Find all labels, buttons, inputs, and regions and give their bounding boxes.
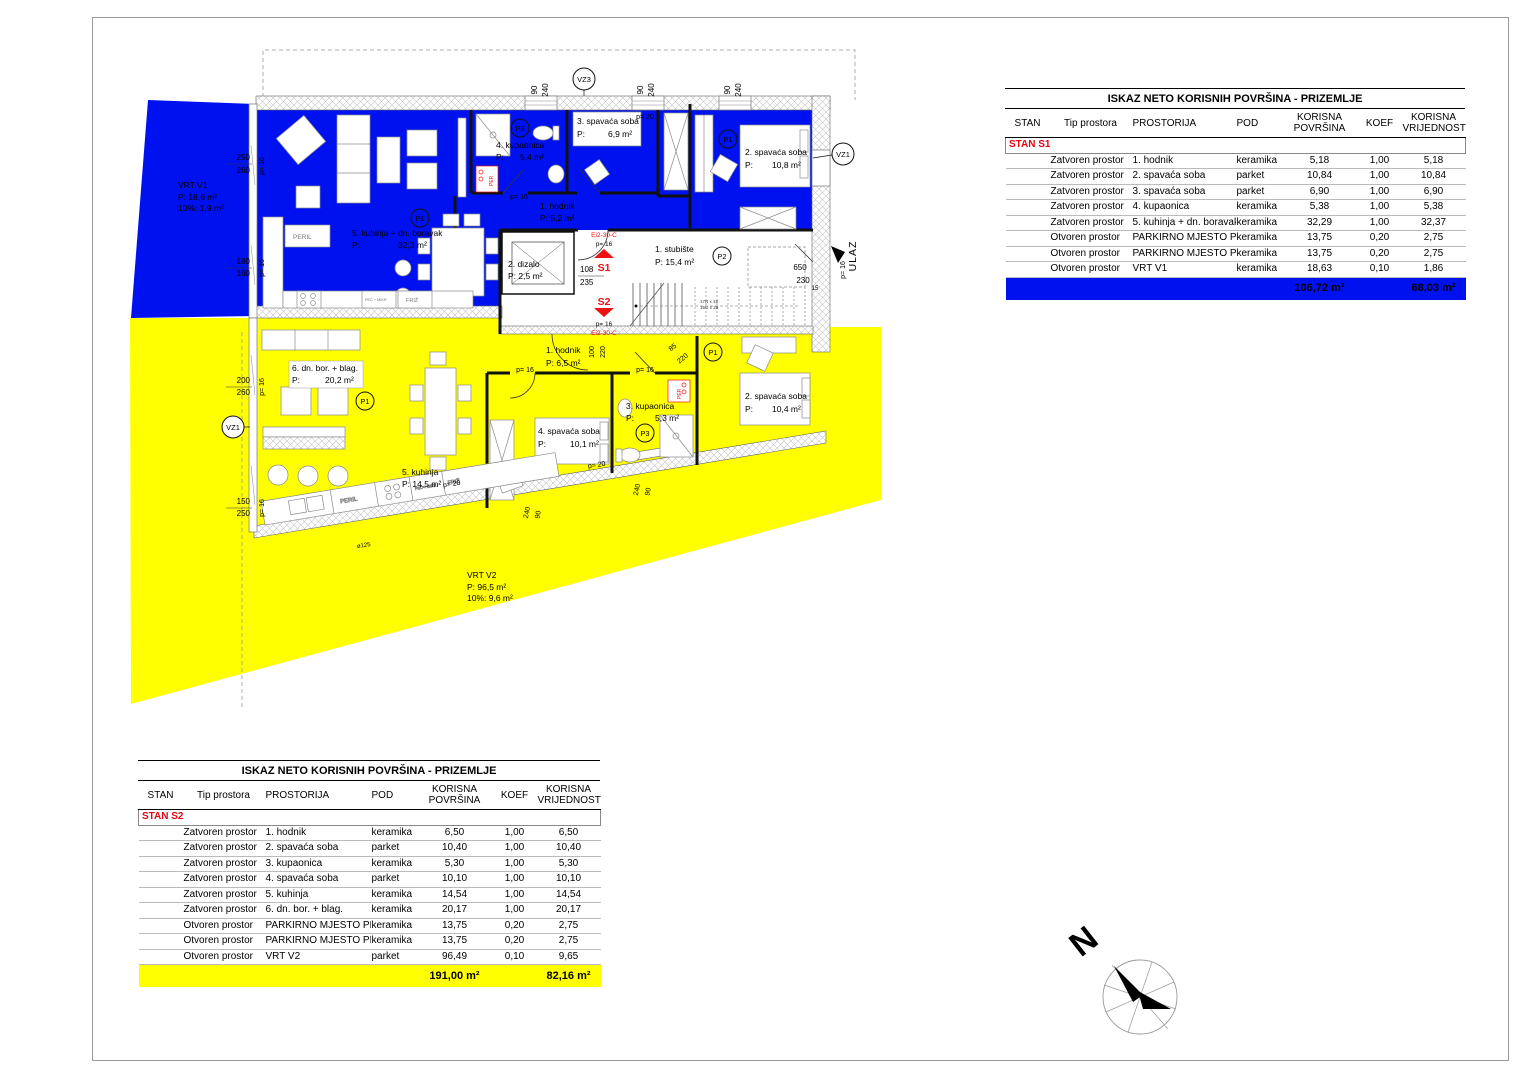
cell-koef: 1,00 <box>493 887 537 903</box>
cell-stan <box>139 872 183 888</box>
label-s2-bed4-area: 10,1 m² <box>570 439 599 449</box>
cell-tip-prostora: Otvoren prostor <box>1050 262 1132 278</box>
label-s1-bath-area: 5,4 m² <box>520 152 544 162</box>
cell-korisna-vrijednost: 2,75 <box>1402 231 1466 247</box>
cell-prostorija: 3. spavaća soba <box>1132 184 1236 200</box>
cell-korisna-povrsina: 6,90 <box>1282 184 1358 200</box>
cell-korisna-povrsina: 5,18 <box>1282 153 1358 169</box>
door-dim-s1: p= 16 <box>596 241 613 248</box>
label-s2-living-p: P: <box>292 375 300 385</box>
cell-stan <box>1006 215 1050 231</box>
cell-korisna-vrijednost: 2,75 <box>537 918 601 934</box>
dim-left-160: 160 <box>237 269 251 278</box>
compass-needle-nw <box>1114 966 1143 1002</box>
dim-p16-hall3: p= 16 <box>636 367 654 374</box>
table-row: Otvoren prostor PARKIRNO MJESTO PM1 kera… <box>1006 231 1466 247</box>
cell-tip-prostora: Zatvoren prostor <box>1050 153 1132 169</box>
cell-korisna-vrijednost: 10,10 <box>537 872 601 888</box>
marker-vz1-right: VZ1 <box>836 150 850 159</box>
label-s1-bed2-area: 10,8 m² <box>772 160 801 170</box>
cell-prostorija: 2. spavaća soba <box>1132 169 1236 185</box>
label-s2-kitchen-area: P: 14,5 m² <box>402 479 441 489</box>
dim-108: 108 <box>580 265 594 274</box>
cell-pod: parket <box>1236 169 1282 185</box>
cell-stan <box>1006 246 1050 262</box>
label-s2-bath-p: P: <box>626 413 634 423</box>
cell-stan <box>139 918 183 934</box>
cell-prostorija: PARKIRNO MJESTO PM1 <box>1132 231 1236 247</box>
door-dim-s2: p= 16 <box>596 321 613 328</box>
cell-pod: keramika <box>1236 262 1282 278</box>
total-povrsina-s1: 106,72 m² <box>1282 277 1358 300</box>
cell-koef: 1,00 <box>493 825 537 841</box>
cell-tip-prostora: Otvoren prostor <box>1050 231 1132 247</box>
dim-230: 230 <box>796 276 810 285</box>
cell-korisna-vrijednost: 2,75 <box>1402 246 1466 262</box>
cell-stan <box>1006 262 1050 278</box>
cell-koef: 1,00 <box>493 903 537 919</box>
label-s1-hall-area: P: 5,2 m² <box>540 213 575 223</box>
marker-s2: S2 <box>598 296 611 308</box>
dim-left-260b: 260 <box>237 388 251 397</box>
cell-tip-prostora: Zatvoren prostor <box>1050 200 1132 216</box>
north-compass: N <box>1050 895 1200 1055</box>
cell-prostorija: 1. hodnik <box>265 825 371 841</box>
group-row-stan-s2: STAN S2 <box>139 810 601 826</box>
cell-prostorija: 6. dn. bor. + blag. <box>265 903 371 919</box>
col-koef: KOEF <box>1358 109 1402 138</box>
total-row-s1: 106,72 m² 68,03 m² <box>1006 277 1466 300</box>
appliance-per-s1: PER <box>489 175 495 186</box>
marker-p1-s1dining: P1 <box>415 214 424 223</box>
col-koef: KOEF <box>493 781 537 810</box>
cell-tip-prostora: Zatvoren prostor <box>183 856 265 872</box>
col-pod: POD <box>1236 109 1282 138</box>
dim-top-90c: 90 <box>723 85 732 94</box>
cell-prostorija: 5. kuhinja <box>265 887 371 903</box>
cell-koef: 0,20 <box>1358 231 1402 247</box>
dim-p16-l4: p= 16 <box>259 499 266 517</box>
table-s1-title: ISKAZ NETO KORISNIH POVRŠINA - PRIZEMLJE <box>1005 88 1465 109</box>
group-row-stan-s1: STAN S1 <box>1006 138 1466 154</box>
dim-235: 235 <box>580 278 594 287</box>
appliance-peril-s1: PERIL <box>293 234 312 241</box>
table-row: Zatvoren prostor 5. kuhinja keramika 14,… <box>139 887 601 903</box>
col-tip: Tip prostora <box>183 781 265 810</box>
cell-prostorija: 2. spavaća soba <box>265 841 371 857</box>
table-row: Otvoren prostor PARKIRNO MJESTO PM2 kera… <box>1006 246 1466 262</box>
dim-top-240c: 240 <box>734 83 743 97</box>
col-korisna-vrijednost: KORISNA VRIJEDNOST <box>1402 109 1466 138</box>
stair-note-top: 17R x 18 <box>700 299 719 304</box>
cell-tip-prostora: Zatvoren prostor <box>1050 215 1132 231</box>
cell-korisna-povrsina: 10,10 <box>417 872 493 888</box>
table-row: Zatvoren prostor 2. spavaća soba parket … <box>139 841 601 857</box>
entry-label: ULAZ <box>847 241 859 272</box>
label-s2-bed2-name: 2. spavaća soba <box>745 391 807 401</box>
total-vrijednost-s1: 68,03 m² <box>1402 277 1466 300</box>
dim-p16-hall2: p= 16 <box>516 367 534 374</box>
cell-pod: parket <box>371 949 417 965</box>
label-lift-area: P: 2,5 m² <box>508 271 543 281</box>
label-s1-bed3-name: 3. spavaća soba <box>577 116 639 126</box>
cell-korisna-vrijednost: 1,86 <box>1402 262 1466 278</box>
label-vrt1-name: VRT V1 <box>178 180 208 190</box>
col-prostorija: PROSTORIJA <box>265 781 371 810</box>
col-stan: STAN <box>139 781 183 810</box>
compass-needle-se <box>1138 991 1171 1009</box>
cell-tip-prostora: Otvoren prostor <box>183 918 265 934</box>
cell-korisna-vrijednost: 5,30 <box>537 856 601 872</box>
cell-koef: 0,20 <box>1358 246 1402 262</box>
dim-650: 650 <box>793 263 807 272</box>
cell-pod: keramika <box>1236 231 1282 247</box>
table-row: Zatvoren prostor 1. hodnik keramika 5,18… <box>1006 153 1466 169</box>
cell-prostorija: 1. hodnik <box>1132 153 1236 169</box>
cell-korisna-vrijednost: 6,90 <box>1402 184 1466 200</box>
cell-korisna-povrsina: 5,30 <box>417 856 493 872</box>
cell-korisna-vrijednost: 6,50 <box>537 825 601 841</box>
cell-stan <box>1006 169 1050 185</box>
label-stair-area: P: 15,4 m² <box>655 257 694 267</box>
table-s1-header: STAN Tip prostora PROSTORIJA POD KORISNA… <box>1006 109 1466 138</box>
table-row: Zatvoren prostor 3. kupaonica keramika 5… <box>139 856 601 872</box>
total-row-s2: 191,00 m² 82,16 m² <box>139 965 601 988</box>
cell-korisna-povrsina: 13,75 <box>1282 246 1358 262</box>
dim-100-s2hall: 100 <box>589 346 596 358</box>
marker-p3-s2bath: P3 <box>640 429 649 438</box>
label-vrt1-pct: 10%: 1,9 m² <box>178 203 224 213</box>
dim-p20-top: p= 20 <box>636 114 654 121</box>
cell-koef: 0,10 <box>493 949 537 965</box>
cell-korisna-vrijednost: 10,84 <box>1402 169 1466 185</box>
cell-korisna-povrsina: 10,40 <box>417 841 493 857</box>
marker-vz1-left: VZ1 <box>226 423 240 432</box>
cell-koef: 1,00 <box>493 872 537 888</box>
label-s2-bed2-area: 10,4 m² <box>772 404 801 414</box>
cell-pod: keramika <box>371 825 417 841</box>
cell-pod: keramika <box>371 903 417 919</box>
label-s1-hall-name: 1. hodnik <box>540 201 575 211</box>
label-s1-bath-name: 4. kupaonica <box>496 140 544 150</box>
table-stan-s1: ISKAZ NETO KORISNIH POVRŠINA - PRIZEMLJE… <box>1005 88 1465 300</box>
marker-p1-s2living: P1 <box>360 397 369 406</box>
cell-stan <box>1006 184 1050 200</box>
marker-p1-s1bed2: P1 <box>723 135 732 144</box>
cell-pod: parket <box>371 841 417 857</box>
marker-s1: S1 <box>598 262 611 274</box>
cell-stan <box>139 856 183 872</box>
label-s2-bed4-name: 4. spavaća soba <box>538 426 600 436</box>
dim-left-150: 150 <box>237 497 251 506</box>
table-row: Zatvoren prostor 1. hodnik keramika 6,50… <box>139 825 601 841</box>
table-s2-header: STAN Tip prostora PROSTORIJA POD KORISNA… <box>139 781 601 810</box>
cell-stan <box>139 887 183 903</box>
label-s1-kitchen-name: 5. kuhinja + dn. boravak <box>352 228 443 238</box>
label-s1-kitchen-area: 32,3 m² <box>398 240 427 250</box>
dim-top-240a: 240 <box>541 83 550 97</box>
cell-pod: keramika <box>1236 153 1282 169</box>
cell-koef: 1,00 <box>493 841 537 857</box>
dim-p16-entry: p= 16 <box>840 261 847 279</box>
cell-korisna-vrijednost: 9,65 <box>537 949 601 965</box>
cell-koef: 0,20 <box>493 934 537 950</box>
cell-pod: keramika <box>371 934 417 950</box>
cell-koef: 1,00 <box>1358 153 1402 169</box>
cell-tip-prostora: Zatvoren prostor <box>183 903 265 919</box>
dim-top-240b: 240 <box>647 83 656 97</box>
cell-stan <box>1006 231 1050 247</box>
cell-pod: keramika <box>1236 200 1282 216</box>
cell-tip-prostora: Zatvoren prostor <box>183 841 265 857</box>
cell-tip-prostora: Otvoren prostor <box>183 934 265 950</box>
cell-pod: parket <box>1236 184 1282 200</box>
dim-left-260: 260 <box>237 166 251 175</box>
label-s2-living-name: 6. dn. bor. + blag. <box>292 363 358 373</box>
table-row: Zatvoren prostor 5. kuhinja + dn. borava… <box>1006 215 1466 231</box>
cell-pod: parket <box>371 872 417 888</box>
appliance-pec-s1: PEĆ + MIKR <box>365 297 387 302</box>
appliance-per-s2: PER <box>677 388 683 399</box>
marker-p1-s2bed2: P1 <box>708 348 717 357</box>
cell-prostorija: 3. kupaonica <box>265 856 371 872</box>
dim-left-200: 200 <box>237 376 251 385</box>
fire-rating-s1: Ei2-30-C <box>591 232 617 239</box>
table-row: Zatvoren prostor 3. spavaća soba parket … <box>1006 184 1466 200</box>
cell-korisna-vrijednost: 5,38 <box>1402 200 1466 216</box>
col-korisna-vrijednost: KORISNA VRIJEDNOST <box>537 781 601 810</box>
marker-vz3: VZ3 <box>577 75 591 84</box>
table-row: Zatvoren prostor 4. spavaća soba parket … <box>139 872 601 888</box>
table-row: Otvoren prostor PARKIRNO MJESTO PM4 kera… <box>139 934 601 950</box>
cell-stan <box>1006 200 1050 216</box>
cell-stan <box>139 825 183 841</box>
cell-korisna-povrsina: 14,54 <box>417 887 493 903</box>
cell-pod: keramika <box>371 856 417 872</box>
cell-pod: keramika <box>371 918 417 934</box>
dim-15: 15 <box>812 286 819 292</box>
label-s1-bed3-p: P: <box>577 129 585 139</box>
cell-korisna-povrsina: 6,50 <box>417 825 493 841</box>
table-stan-s2: ISKAZ NETO KORISNIH POVRŠINA - PRIZEMLJE… <box>138 760 600 987</box>
cell-stan <box>139 903 183 919</box>
cell-prostorija: VRT V1 <box>1132 262 1236 278</box>
north-label: N <box>1062 919 1105 964</box>
col-pod: POD <box>371 781 417 810</box>
label-vrt2-name: VRT V2 <box>467 570 497 580</box>
cell-tip-prostora: Zatvoren prostor <box>1050 169 1132 185</box>
marker-p2-stair: P2 <box>717 252 726 261</box>
total-povrsina-s2: 191,00 m² <box>417 965 493 988</box>
dim-top-90a: 90 <box>530 85 539 94</box>
dim-220-s2hall: 220 <box>600 346 607 358</box>
cell-korisna-vrijednost: 20,17 <box>537 903 601 919</box>
drawing-sheet: 17R x 18 16G x 28 <box>0 0 1527 1080</box>
label-s2-hall-area: P: 6,5 m² <box>546 358 581 368</box>
cell-korisna-povrsina: 96,49 <box>417 949 493 965</box>
cell-korisna-povrsina: 32,29 <box>1282 215 1358 231</box>
table-row: Otvoren prostor VRT V2 parket 96,49 0,10… <box>139 949 601 965</box>
cell-koef: 0,20 <box>493 918 537 934</box>
col-stan: STAN <box>1006 109 1050 138</box>
cell-prostorija: 4. kupaonica <box>1132 200 1236 216</box>
cell-pod: keramika <box>1236 215 1282 231</box>
table-row: Zatvoren prostor 6. dn. bor. + blag. ker… <box>139 903 601 919</box>
cell-korisna-vrijednost: 10,40 <box>537 841 601 857</box>
cell-korisna-povrsina: 20,17 <box>417 903 493 919</box>
cell-tip-prostora: Otvoren prostor <box>183 949 265 965</box>
entry-arrow <box>831 246 845 263</box>
cell-koef: 1,00 <box>493 856 537 872</box>
cell-korisna-povrsina: 5,38 <box>1282 200 1358 216</box>
label-vrt2-pct: 10%: 9,6 m² <box>467 593 513 603</box>
label-s2-kitchen-name: 5. kuhinja <box>402 467 439 477</box>
col-korisna-povrsina: KORISNA POVRŠINA <box>1282 109 1358 138</box>
total-vrijednost-s2: 82,16 m² <box>537 965 601 988</box>
cell-koef: 1,00 <box>1358 200 1402 216</box>
cell-tip-prostora: Zatvoren prostor <box>1050 184 1132 200</box>
col-korisna-povrsina: KORISNA POVRŠINA <box>417 781 493 810</box>
cell-korisna-povrsina: 13,75 <box>1282 231 1358 247</box>
cell-korisna-povrsina: 13,75 <box>417 934 493 950</box>
stair-note-bottom: 16G x 28 <box>700 305 719 310</box>
table-s2-title: ISKAZ NETO KORISNIH POVRŠINA - PRIZEMLJE <box>138 760 600 781</box>
cell-tip-prostora: Zatvoren prostor <box>183 872 265 888</box>
cell-koef: 1,00 <box>1358 215 1402 231</box>
dim-p16-hall1: p= 16 <box>510 194 528 201</box>
cell-prostorija: 4. spavaća soba <box>265 872 371 888</box>
table-row: Otvoren prostor VRT V1 keramika 18,63 0,… <box>1006 262 1466 278</box>
dim-top-90b: 90 <box>636 85 645 94</box>
cell-stan <box>1006 153 1050 169</box>
label-s2-living-area: 20,2 m² <box>325 375 354 385</box>
label-vrt1-area: P: 18,6 m² <box>178 192 217 202</box>
dim-left-250: 250 <box>237 153 251 162</box>
cell-koef: 1,00 <box>1358 184 1402 200</box>
table-row: Zatvoren prostor 4. kupaonica keramika 5… <box>1006 200 1466 216</box>
table-row: Otvoren prostor PARKIRNO MJESTO PM3 kera… <box>139 918 601 934</box>
label-stair-name: 1. stubište <box>655 244 694 254</box>
label-s1-bath-p: P: <box>496 152 504 162</box>
appliance-friz-s1: FRIŽ <box>406 296 419 304</box>
label-s1-kitchen-p: P: <box>352 240 360 250</box>
table-row: Zatvoren prostor 2. spavaća soba parket … <box>1006 169 1466 185</box>
cell-stan <box>139 949 183 965</box>
dim-p16-l3: p= 16 <box>259 378 266 396</box>
dim-p16-l2: p= 16 <box>259 259 266 277</box>
floor-plan: 17R x 18 16G x 28 <box>110 35 910 725</box>
fire-rating-s2: Ei2-30-C <box>591 330 617 337</box>
label-s2-bed2-p: P: <box>745 404 753 414</box>
cell-korisna-povrsina: 10,84 <box>1282 169 1358 185</box>
cell-korisna-vrijednost: 14,54 <box>537 887 601 903</box>
label-lift-name: 2. dizalo <box>508 259 540 269</box>
label-s1-bed2-p: P: <box>745 160 753 170</box>
marker-p3-s1bath: P3 <box>515 124 524 133</box>
label-s2-hall-name: 1. hodnik <box>546 345 581 355</box>
cell-prostorija: 5. kuhinja + dn. boravak <box>1132 215 1236 231</box>
label-s2-bath-area: 5,3 m² <box>655 413 679 423</box>
cell-prostorija: PARKIRNO MJESTO PM3 <box>265 918 371 934</box>
cell-koef: 1,00 <box>1358 169 1402 185</box>
cell-korisna-povrsina: 13,75 <box>417 918 493 934</box>
cell-koef: 0,10 <box>1358 262 1402 278</box>
cell-korisna-povrsina: 18,63 <box>1282 262 1358 278</box>
cell-tip-prostora: Zatvoren prostor <box>183 887 265 903</box>
cell-tip-prostora: Zatvoren prostor <box>183 825 265 841</box>
cell-pod: keramika <box>1236 246 1282 262</box>
label-vrt2-area: P: 96,5 m² <box>467 582 506 592</box>
cell-stan <box>139 841 183 857</box>
cell-stan <box>139 934 183 950</box>
cell-prostorija: VRT V2 <box>265 949 371 965</box>
cell-korisna-vrijednost: 5,18 <box>1402 153 1466 169</box>
cell-korisna-vrijednost: 32,37 <box>1402 215 1466 231</box>
label-s1-bed3-area: 6,9 m² <box>608 129 632 139</box>
cell-korisna-vrijednost: 2,75 <box>537 934 601 950</box>
col-tip: Tip prostora <box>1050 109 1132 138</box>
cell-prostorija: PARKIRNO MJESTO PM2 <box>1132 246 1236 262</box>
dim-p16-l1: p= 16 <box>259 157 266 175</box>
dim-left-180: 180 <box>237 257 251 266</box>
cell-prostorija: PARKIRNO MJESTO PM4 <box>265 934 371 950</box>
cell-tip-prostora: Otvoren prostor <box>1050 246 1132 262</box>
label-s2-bed4-p: P: <box>538 439 546 449</box>
label-s1-bed2-name: 2. spavaća soba <box>745 147 807 157</box>
cell-pod: keramika <box>371 887 417 903</box>
dim-left-250b: 250 <box>237 509 251 518</box>
label-s2-bath-name: 3. kupaonica <box>626 401 674 411</box>
col-prostorija: PROSTORIJA <box>1132 109 1236 138</box>
